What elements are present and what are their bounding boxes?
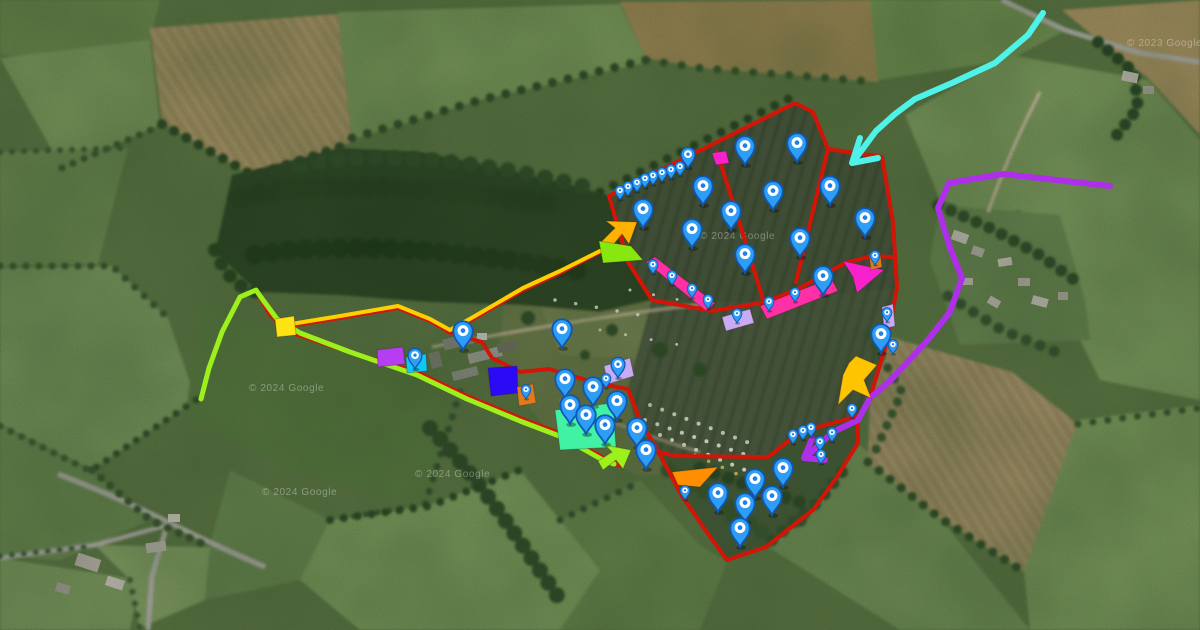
map-pin-dot xyxy=(770,493,775,498)
map-pin-dot xyxy=(798,235,803,240)
map-pin-dot xyxy=(795,140,800,145)
map-pin-dot xyxy=(644,177,646,179)
map-pin-dot xyxy=(679,165,681,167)
map-pin-dot xyxy=(863,215,868,220)
map-pin-dot xyxy=(716,490,721,495)
map-pin-dot xyxy=(686,152,689,155)
map-pin-dot xyxy=(644,447,649,452)
map-canvas: © 2024 Google© 2024 Google© 2024 Google©… xyxy=(0,0,1200,630)
map-pin-dot xyxy=(802,429,804,431)
zone-blue-rect[interactable] xyxy=(488,366,518,396)
map-pin-dot xyxy=(768,300,770,302)
satellite-imagery xyxy=(0,0,1200,630)
map-pin-dot xyxy=(753,476,758,481)
google-watermark: © 2024 Google xyxy=(415,469,490,480)
map-pin-dot xyxy=(671,274,673,276)
map-pin-dot xyxy=(627,185,629,187)
google-watermark: © 2023 Google xyxy=(1127,38,1200,49)
map-pin-dot xyxy=(461,328,466,333)
map-pin-dot xyxy=(701,183,706,188)
map-pin-dot xyxy=(707,298,709,300)
map-pin-dot xyxy=(652,174,654,176)
map-pin-dot xyxy=(831,431,833,433)
map-pin-dot xyxy=(781,465,786,470)
satellite-map: © 2024 Google© 2024 Google© 2024 Google©… xyxy=(0,0,1200,630)
map-pin-dot xyxy=(603,422,608,427)
map-pin-dot xyxy=(851,407,853,409)
map-pin-dot xyxy=(652,263,654,265)
map-pin-dot xyxy=(605,377,607,379)
zone-purple-rect[interactable] xyxy=(377,347,405,367)
map-pin-dot xyxy=(525,388,527,390)
map-pin-dot xyxy=(820,453,822,455)
map-pin-dot xyxy=(794,291,796,293)
map-pin-dot xyxy=(584,412,589,417)
map-pin-dot xyxy=(591,384,596,389)
map-pin-dot xyxy=(819,440,821,442)
map-pin-dot xyxy=(413,353,416,356)
map-pin-dot xyxy=(661,171,663,173)
map-pin-dot xyxy=(568,402,573,407)
map-pin-dot xyxy=(560,326,565,331)
map-pin-dot xyxy=(616,362,619,365)
map-pin-dot xyxy=(771,188,776,193)
map-pin-dot xyxy=(792,433,794,435)
google-watermark: © 2024 Google xyxy=(700,231,775,242)
map-pin-dot xyxy=(563,376,568,381)
map-pin-dot xyxy=(736,312,738,314)
map-pin-dot xyxy=(810,426,812,428)
map-pin-dot xyxy=(743,143,748,148)
map-pin-dot xyxy=(670,168,672,170)
map-pin-dot xyxy=(738,525,743,530)
map-pin-dot xyxy=(821,273,826,278)
map-pin-dot xyxy=(615,398,620,403)
map-pin-dot xyxy=(892,343,894,345)
map-pin-dot xyxy=(690,226,695,231)
map-pin-dot xyxy=(641,206,646,211)
map-pin-dot xyxy=(729,208,734,213)
map-pin-dot xyxy=(743,251,748,256)
google-watermark: © 2024 Google xyxy=(249,383,324,394)
map-pin-dot xyxy=(886,311,888,313)
map-pin-dot xyxy=(879,331,884,336)
map-pin-dot xyxy=(828,183,833,188)
map-pin-dot xyxy=(874,254,876,256)
map-pin-dot xyxy=(743,500,748,505)
zone-yellow-gate[interactable] xyxy=(275,316,296,337)
map-pin-dot xyxy=(691,287,693,289)
google-watermark: © 2024 Google xyxy=(262,487,337,498)
map-pin-dot xyxy=(635,425,640,430)
map-pin-dot xyxy=(619,189,621,191)
map-pin-dot xyxy=(636,181,638,183)
map-pin-dot xyxy=(684,489,686,491)
